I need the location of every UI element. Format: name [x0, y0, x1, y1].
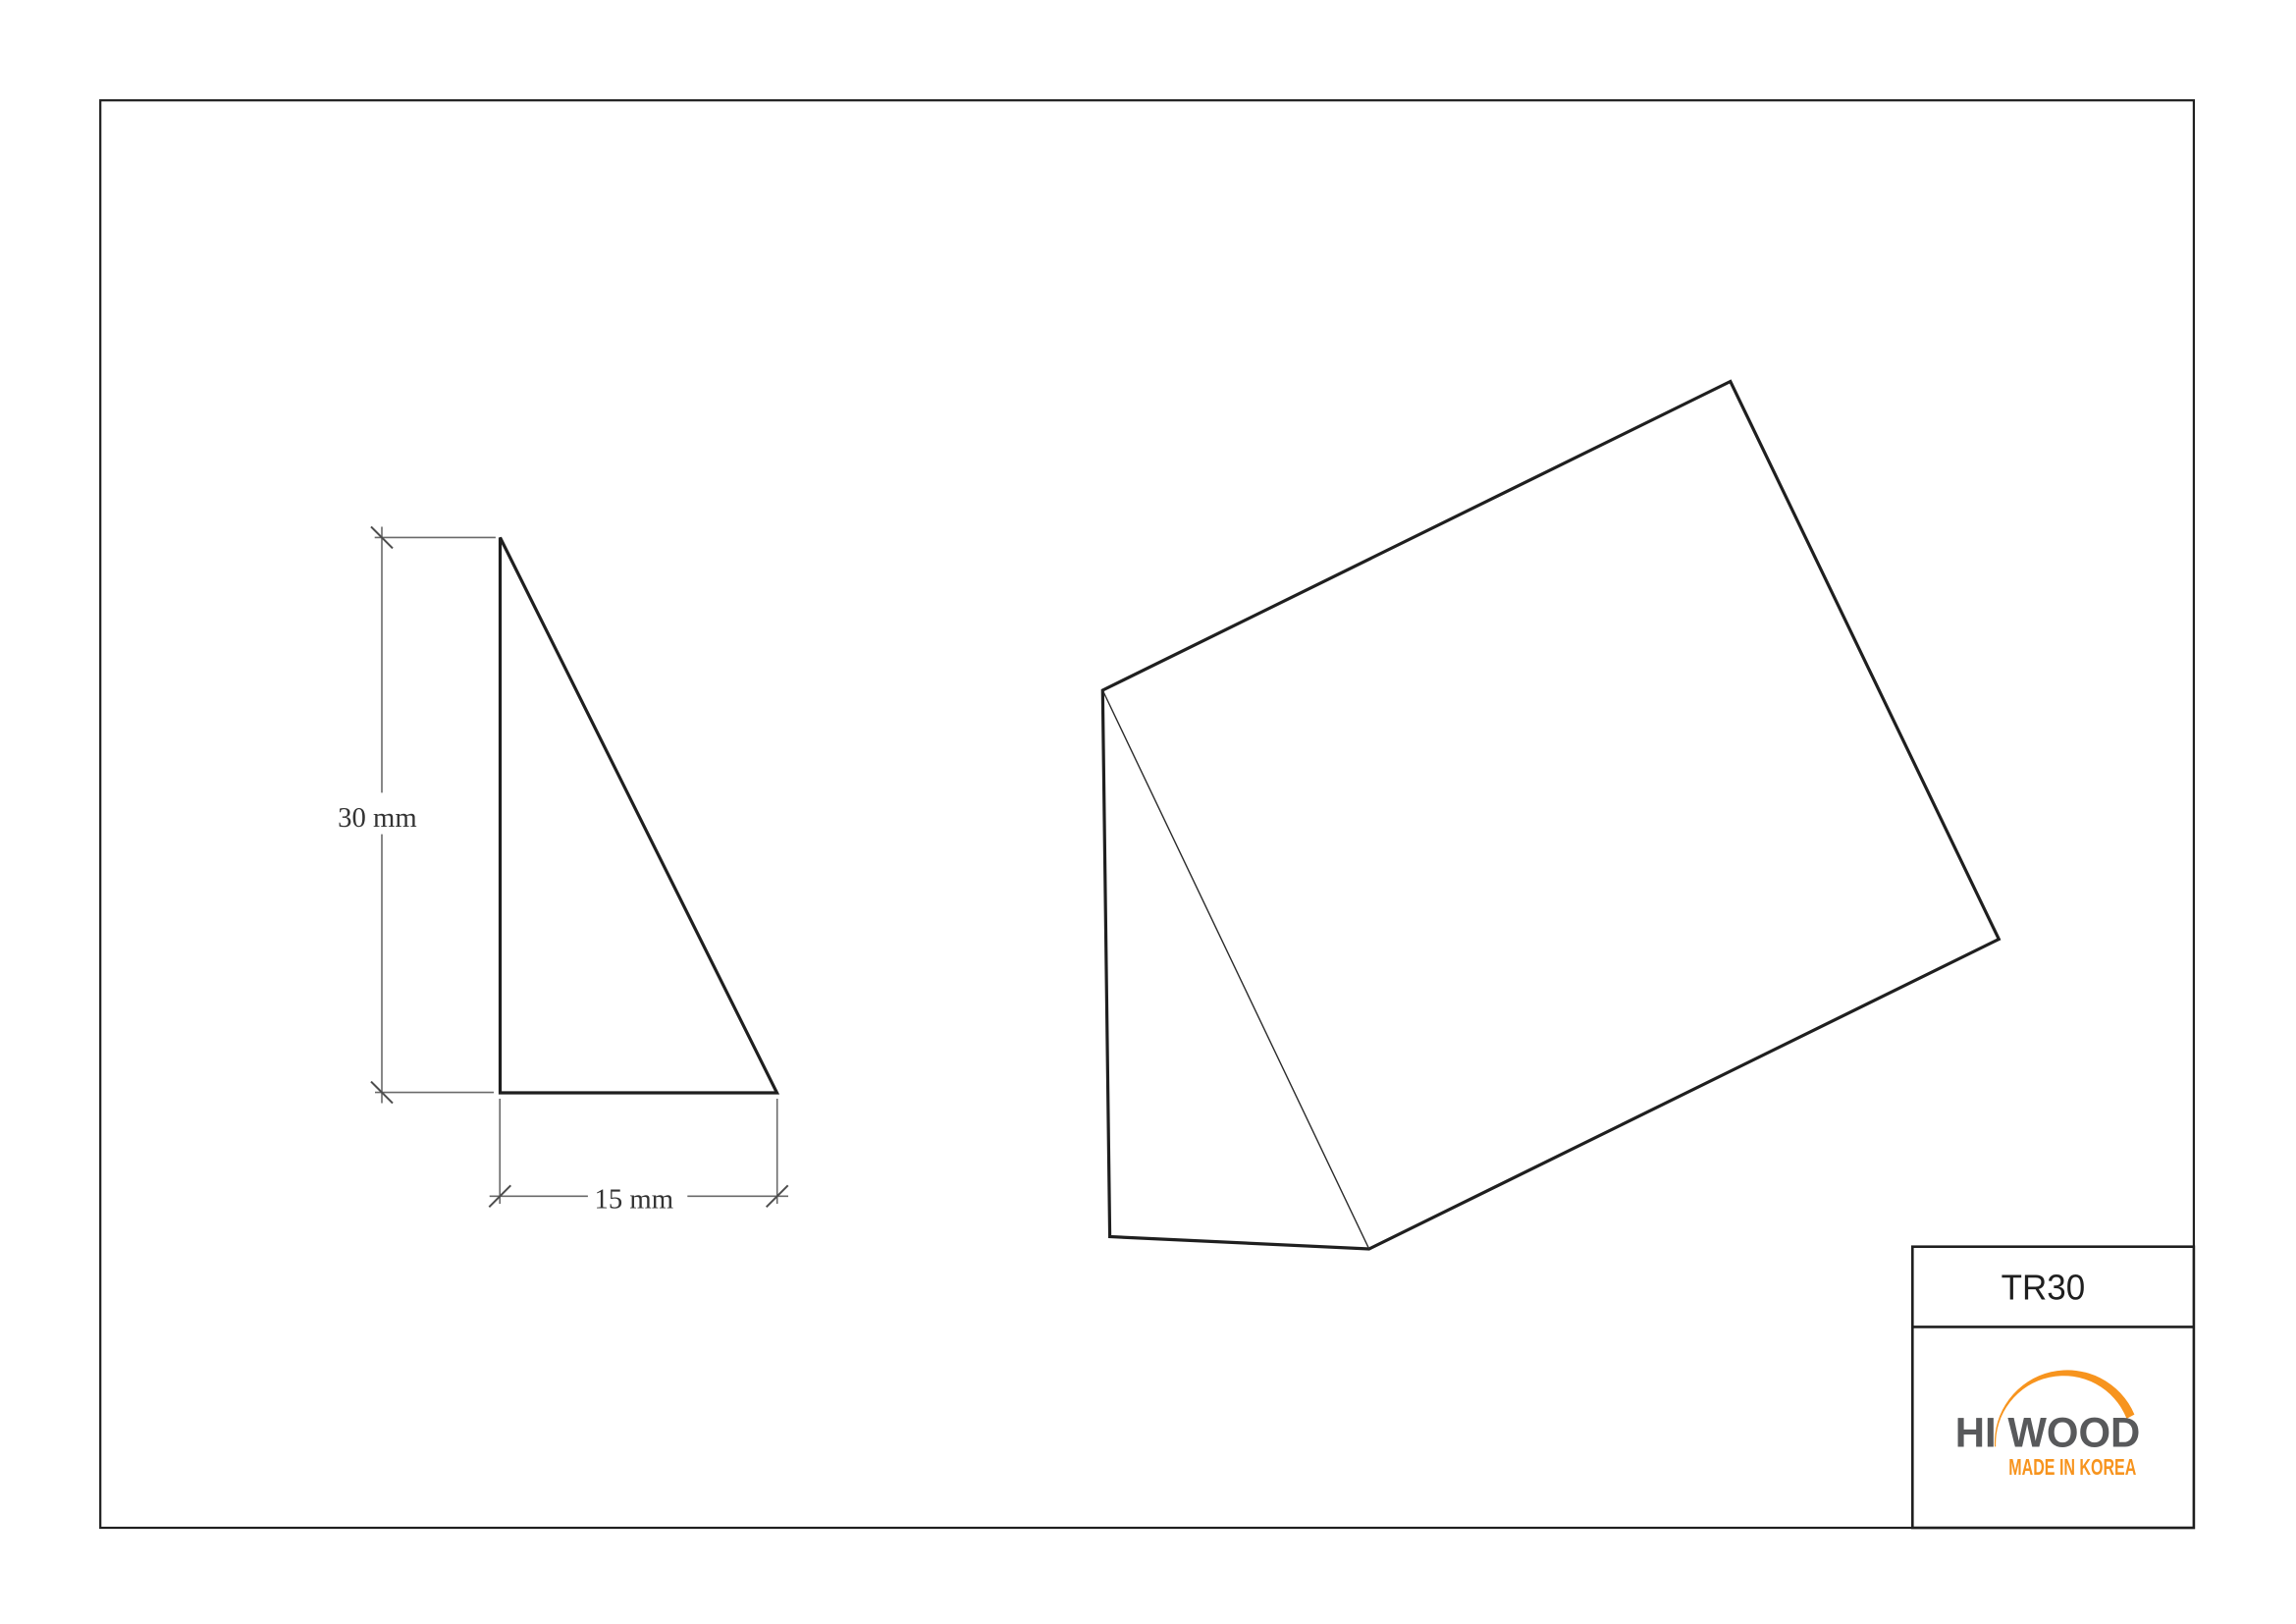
svg-text:30 mm: 30 mm — [338, 802, 417, 834]
svg-text:15 mm: 15 mm — [595, 1184, 674, 1216]
svg-text:HI WOOD: HI WOOD — [1955, 1409, 2141, 1455]
svg-text:TR30: TR30 — [2002, 1268, 2086, 1308]
svg-text:MADE IN KOREA: MADE IN KOREA — [2008, 1454, 2136, 1480]
